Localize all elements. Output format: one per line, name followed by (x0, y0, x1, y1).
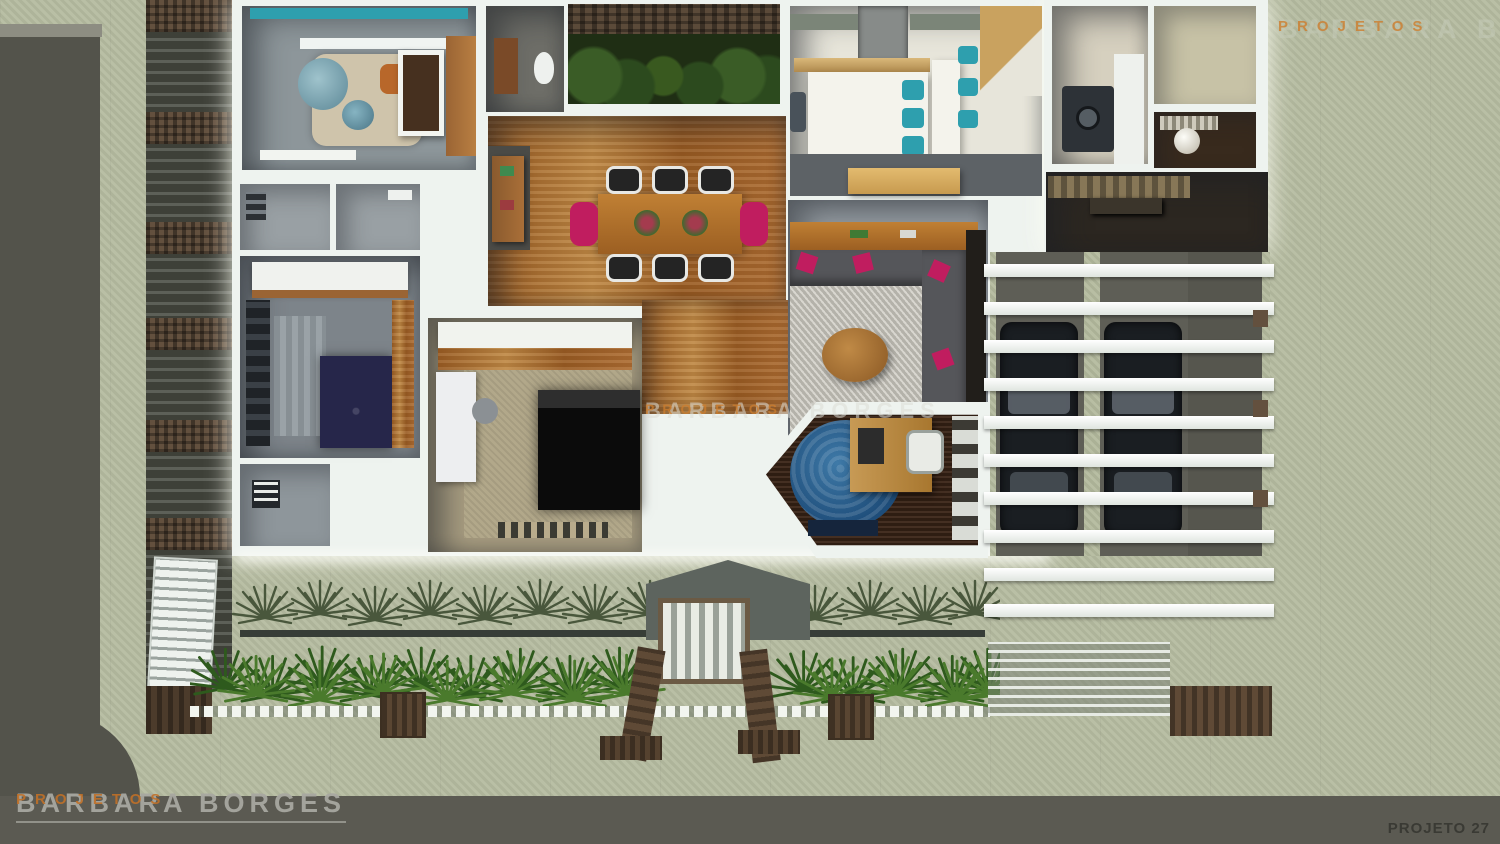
living-console (790, 222, 978, 250)
nursery-teal-wall (250, 8, 468, 19)
garden-post (828, 694, 874, 740)
kitchen-counter-right (932, 60, 960, 160)
flower-centerpiece (682, 210, 708, 236)
dining-chair (698, 166, 734, 194)
fence-pillar (146, 518, 232, 550)
toilet (534, 52, 554, 84)
floorplan-render: BARBARA BORGES PROJETOS BARBARA BORGES P… (0, 0, 1500, 844)
brand-subtext: PROJETOS (16, 791, 169, 808)
entry-stone-wall (1048, 176, 1190, 198)
bath2-sink (388, 190, 412, 200)
room-nursery (242, 6, 476, 170)
room-bathroom3 (240, 464, 330, 546)
bedroom2-bed (320, 356, 392, 448)
room-bedroom2 (240, 256, 420, 458)
dining-sideboard (492, 156, 524, 242)
desk-items (858, 428, 884, 464)
pillar-footing (1253, 490, 1268, 507)
dining-table (598, 194, 742, 254)
kitchen-stool (902, 80, 924, 100)
front-brick-bar (1170, 686, 1272, 736)
bed-pillows (538, 390, 640, 408)
bedroom2-wardrobe (252, 262, 408, 292)
room-entry-hall (1046, 172, 1268, 252)
kitchen-counter-shadow (790, 14, 860, 30)
master-runner-rug (498, 522, 608, 538)
dining-chair (698, 254, 734, 282)
dining-chair (652, 166, 688, 194)
coffee-table (822, 328, 888, 382)
sideboard-decor (500, 200, 514, 210)
front-louver-fence (988, 642, 1170, 716)
dining-chair (606, 166, 642, 194)
pergola-slat (984, 530, 1274, 543)
nursery-wood-strip (446, 36, 476, 156)
nursery-baseboard (260, 150, 356, 160)
kitchen-counter-shadow2 (910, 14, 990, 30)
master-dresser (436, 372, 476, 482)
master-bed (538, 390, 640, 510)
washer-door (1076, 106, 1100, 130)
pergola-slat (984, 302, 1274, 315)
kitchen-stove (858, 6, 908, 62)
kitchen-fridge (790, 92, 806, 132)
office-mat (808, 520, 878, 536)
dining-end-chair (570, 202, 598, 246)
garden-post (380, 692, 426, 738)
bath3-window (252, 480, 280, 508)
kitchen-wood-corner (980, 6, 1042, 96)
flower-centerpiece (634, 210, 660, 236)
room-lavabo (1154, 112, 1256, 168)
pergola-slat (984, 264, 1274, 277)
kitchen-stool (902, 136, 924, 156)
pergola-slat (984, 340, 1274, 353)
kitchen-stool (958, 78, 978, 96)
room-laundry (1052, 6, 1148, 164)
front-garden (190, 556, 1000, 756)
dining-chair (652, 254, 688, 282)
room-storage (1154, 6, 1256, 104)
master-wardrobe (438, 322, 632, 348)
master-wood-strip (438, 348, 632, 370)
office-shelf (952, 416, 978, 540)
fence-pillar (146, 0, 232, 32)
pergola-slat (984, 378, 1274, 391)
kitchen-stool (958, 110, 978, 128)
console-decor (850, 230, 868, 238)
room-bathroom (486, 6, 564, 112)
bedroom2-rug (274, 316, 326, 436)
corridor-wood (642, 300, 788, 414)
nursery-pouf (342, 100, 374, 130)
winter-garden-plants (568, 34, 780, 104)
nursery-crib (398, 50, 444, 136)
pergola-slat (984, 604, 1274, 617)
fence-pillar (146, 420, 232, 452)
pergola-slat (984, 568, 1274, 581)
curb-strip (0, 24, 102, 37)
sideboard-decor (500, 166, 514, 176)
street-left (0, 36, 100, 826)
kitchen-stool (958, 46, 978, 64)
pergola-slat (984, 454, 1274, 467)
kitchen-stool (902, 108, 924, 128)
kitchen-wood-counter (794, 58, 930, 72)
closet-shelves (246, 192, 266, 220)
entry-walkway (658, 598, 750, 684)
pergola-slat (984, 492, 1274, 505)
bedroom2-wardrobe-edge (252, 290, 408, 298)
console-decor (900, 230, 916, 238)
bedroom2-bench (246, 300, 270, 446)
kitchen-bench (848, 168, 960, 194)
pergola-slat (984, 416, 1274, 429)
room-closet (240, 184, 330, 250)
dining-end-chair (740, 202, 768, 246)
decor-bowl (1174, 128, 1200, 154)
pillar-footing (1253, 400, 1268, 417)
entry-console (1090, 198, 1162, 214)
garden-rail (240, 630, 985, 637)
nursery-armchair (298, 58, 348, 110)
room-kitchen (790, 6, 1042, 196)
master-chair (472, 398, 498, 424)
office-chair (906, 430, 944, 474)
brand-subtext: PROJETOS (645, 401, 785, 417)
room-winter-garden (568, 4, 780, 104)
gate-foot (600, 736, 662, 760)
garage-shadow (1188, 252, 1262, 556)
fence-pillar (146, 112, 232, 144)
project-number-label: PROJETO 27 (1388, 820, 1490, 837)
room-master-bedroom (428, 318, 642, 552)
pillar-footing (1253, 310, 1268, 327)
fence-pillar (146, 318, 232, 350)
dining-chair (606, 254, 642, 282)
bedroom2-wood-edge (392, 300, 414, 448)
gate-foot (738, 730, 800, 754)
laundry-door (1114, 54, 1144, 164)
fence-pillar (146, 222, 232, 254)
bathroom-vanity (494, 38, 518, 94)
brand-subtext: PROJETOS (1278, 18, 1431, 35)
room-bathroom2 (336, 184, 420, 250)
room-dining (488, 116, 786, 306)
washing-machine (1062, 86, 1114, 152)
